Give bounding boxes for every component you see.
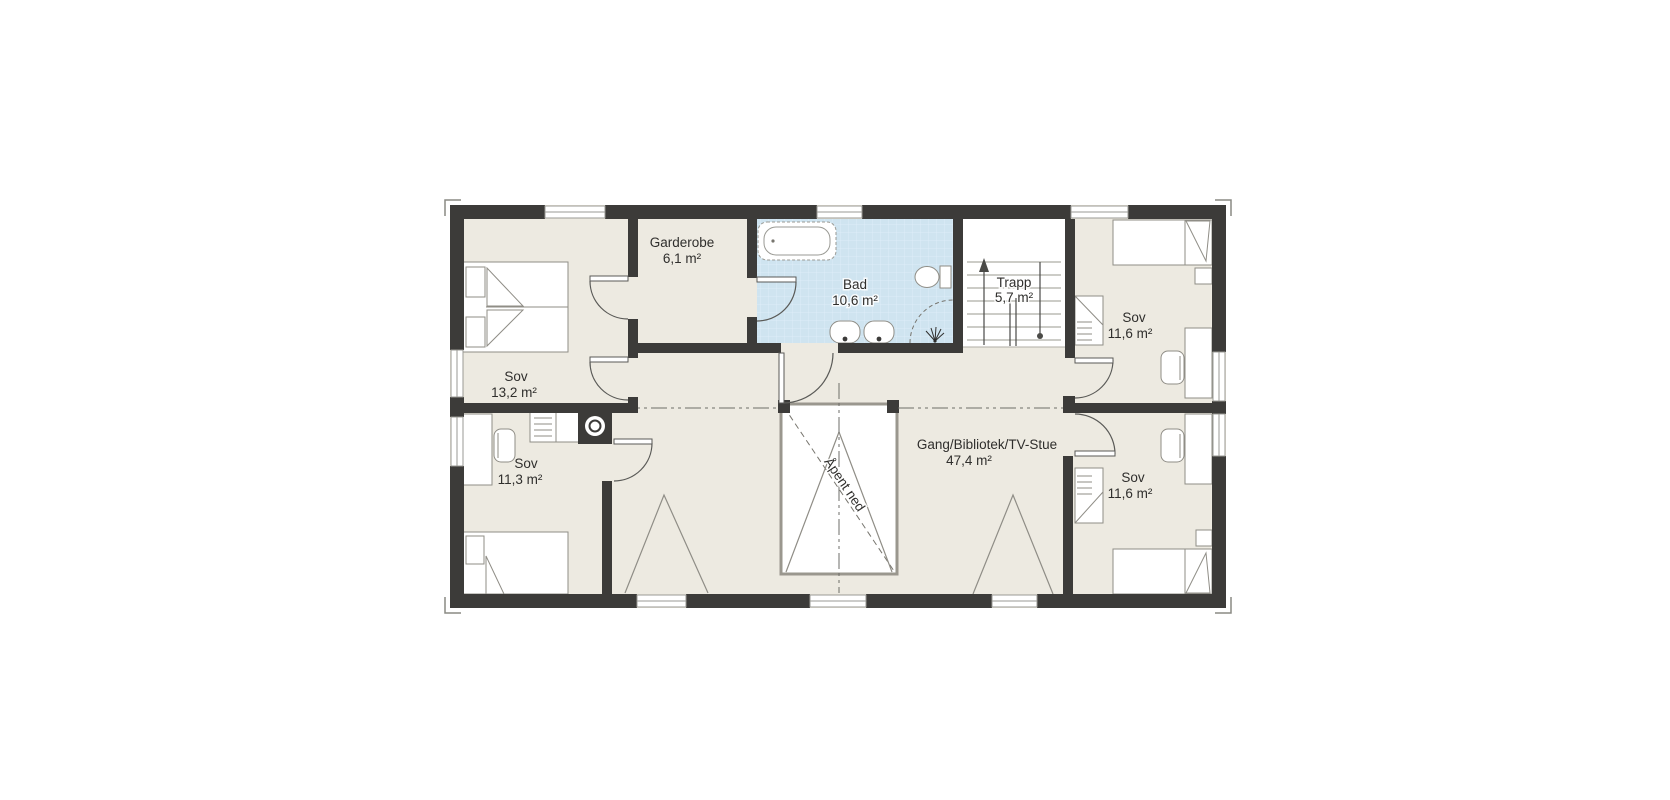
window-icon — [1071, 206, 1128, 218]
window-icon — [1213, 352, 1225, 401]
window-icon — [637, 595, 686, 607]
window-icon — [1213, 414, 1225, 456]
window-icon — [451, 350, 463, 397]
room-label-sov-bottom-right: Sov — [1121, 470, 1145, 485]
room-label-garderobe: Garderobe — [650, 235, 715, 250]
room-label-trapp: Trapp — [997, 275, 1032, 290]
double-bed-icon — [462, 262, 568, 352]
single-bed-icon — [1113, 549, 1212, 594]
chair-icon — [494, 429, 515, 462]
room-area-sov-bottom-left: 11,3 m² — [498, 472, 543, 487]
single-bed-icon — [462, 532, 568, 594]
room-area-sov-top-right: 11,6 m² — [1108, 326, 1153, 341]
floorplan-drawing: Sov 13,2 m² Garderobe 6,1 m² Bad 10,6 m²… — [0, 0, 1670, 800]
chimney-icon — [578, 408, 612, 444]
room-area-sov-bottom-right: 11,6 m² — [1108, 486, 1153, 501]
toilet-icon — [915, 266, 951, 288]
wardrobe-icon — [530, 412, 580, 442]
nightstand-icon — [1195, 268, 1212, 284]
room-label-sov-bottom-left: Sov — [514, 456, 538, 471]
nightstand-icon — [1196, 530, 1212, 546]
wardrobe-icon — [1075, 296, 1103, 345]
single-bed-icon — [1113, 220, 1212, 265]
room-area-sov-master: 13,2 m² — [491, 385, 537, 400]
room-label-gang: Gang/Bibliotek/TV-Stue — [917, 437, 1057, 452]
window-icon — [545, 206, 605, 218]
room-area-garderobe: 6,1 m² — [663, 251, 702, 266]
floorplan-page: Sov 13,2 m² Garderobe 6,1 m² Bad 10,6 m²… — [0, 0, 1670, 800]
room-label-sov-master: Sov — [504, 369, 528, 384]
desk-icon — [463, 414, 492, 485]
sink-icon — [864, 321, 894, 343]
chair-icon — [1161, 351, 1184, 384]
wardrobe-icon — [1075, 468, 1103, 523]
window-icon — [451, 417, 463, 466]
bathtub-icon — [758, 222, 836, 260]
sink-icon — [830, 321, 860, 343]
room-area-gang: 47,4 m² — [946, 453, 992, 468]
room-label-sov-top-right: Sov — [1122, 310, 1146, 325]
room-area-trapp: 5,7 m² — [995, 290, 1034, 305]
room-label-bad: Bad — [843, 277, 867, 292]
window-icon — [810, 595, 866, 607]
chair-icon — [1161, 429, 1184, 462]
room-area-bad: 10,6 m² — [832, 293, 878, 308]
desk-icon — [1185, 414, 1212, 484]
window-icon — [817, 206, 862, 218]
window-icon — [992, 595, 1037, 607]
desk-icon — [1185, 328, 1212, 398]
